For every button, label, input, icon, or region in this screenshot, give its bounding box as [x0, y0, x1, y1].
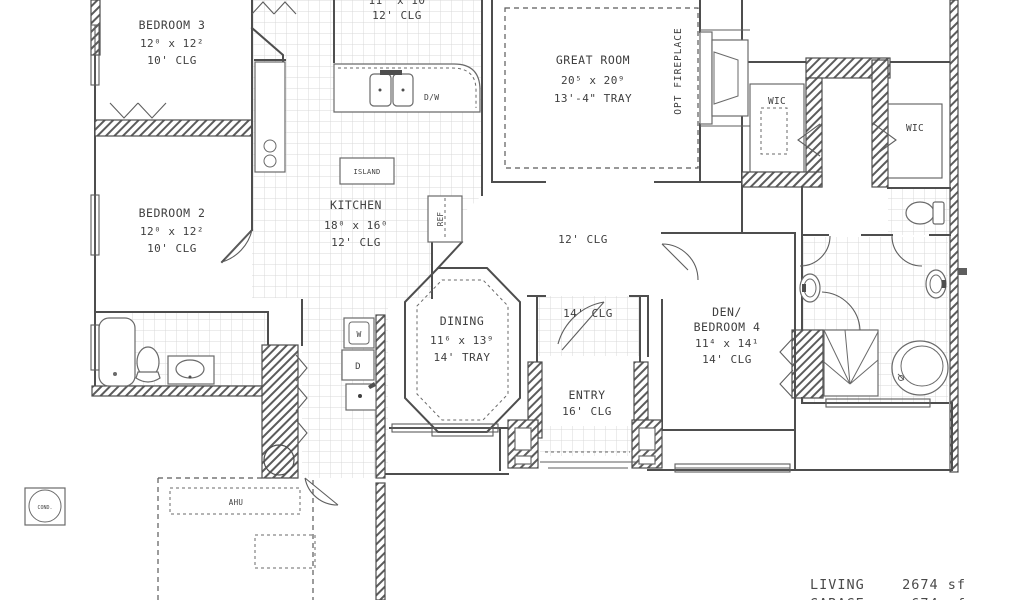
garage-value: 674 sf: [911, 596, 966, 600]
den-clg: 14' CLG: [702, 353, 752, 366]
opt-fireplace-label: OPT FIREPLACE: [673, 27, 684, 114]
window-under-dining: [392, 424, 498, 432]
condenser-label: COND.: [37, 505, 52, 511]
wall-wic-bottom: [742, 172, 822, 187]
fireplace-back: [700, 32, 712, 124]
kitchen-dims: 18⁰ x 16⁰: [324, 219, 388, 232]
great-room-name: GREAT ROOM: [556, 53, 630, 67]
den-name1: DEN/: [712, 305, 742, 319]
door-den-closet: [780, 338, 793, 398]
bedroom2-name: BEDROOM 2: [139, 206, 206, 220]
great-room-dims: 20⁵ x 20⁹: [561, 74, 625, 87]
living-label: LIVING: [810, 577, 865, 593]
wic-left-shelf: [761, 108, 787, 154]
wall-bath-chase: [792, 330, 823, 398]
den-dims: 11⁴ x 14¹: [695, 337, 759, 350]
dining-name: DINING: [440, 314, 485, 328]
window-bedroom2: [91, 195, 99, 255]
door-bed3-chevrons: [110, 103, 166, 118]
washer-label: W: [356, 330, 361, 339]
sink-left-bath: [176, 360, 204, 378]
hall-floor: [537, 296, 640, 356]
cafe-clg: 12' CLG: [372, 9, 422, 22]
shower: [824, 330, 878, 396]
window-bath-left: [91, 325, 99, 370]
dining-tray: [417, 280, 508, 420]
wall-left-bottom: [92, 386, 272, 396]
dining-dims: 11⁶ x 13⁹: [430, 334, 494, 347]
bedroom3-dims: 12⁰ x 12²: [140, 37, 204, 50]
ahu-label: AHU: [229, 498, 243, 507]
refrigerator-label: REF: [436, 212, 445, 227]
kitchen-clg: 12' CLG: [331, 236, 381, 249]
cafe-dims: 11' x 10: [369, 0, 426, 7]
water-heater: [264, 445, 294, 475]
dryer-label: D: [355, 362, 361, 372]
toilet-right: [906, 202, 934, 224]
entry-clg: 16' CLG: [562, 405, 612, 418]
floor-plan: BEDROOM 3 12⁰ x 12² 10' CLG 11' x 10 12'…: [0, 0, 1024, 600]
toilet-left-base: [136, 372, 160, 382]
garden-tub: [892, 341, 948, 395]
wall-bed3-bed2: [95, 120, 252, 136]
wall-garage-right: [376, 483, 385, 600]
bathtub-left: [99, 318, 135, 386]
dishwasher-label: D/W: [424, 93, 439, 102]
garage-outline: [158, 478, 313, 600]
bedroom3-name: BEDROOM 3: [139, 18, 206, 32]
wic-right-label: WIC: [906, 123, 924, 134]
wic-right-room: [888, 104, 942, 178]
floor-plan-drawing: BEDROOM 3 12⁰ x 12² 10' CLG 11' x 10 12'…: [0, 0, 1024, 600]
great-room-tray: [505, 8, 698, 168]
kitchen-name: KITCHEN: [330, 198, 382, 212]
den-name2: BEDROOM 4: [694, 320, 761, 334]
garage-inner-rect: [255, 535, 315, 568]
hose-bib: [958, 268, 967, 275]
bedroom2-dims: 12⁰ x 12²: [140, 225, 204, 238]
door-bed2: [222, 230, 252, 262]
island-label: ISLAND: [353, 168, 380, 176]
hall-clg: 14' CLG: [563, 307, 613, 320]
entry-name: ENTRY: [568, 388, 605, 402]
living-value: 2674 sf: [902, 577, 966, 593]
wic-left-label: WIC: [768, 96, 786, 107]
dining-clg: 14' TRAY: [434, 351, 491, 364]
wall-wic-center-right: [872, 60, 888, 187]
garage-label: GARAGE: [810, 596, 865, 600]
fireplace-box: [712, 40, 748, 116]
wall-right-exterior: [950, 0, 958, 472]
bedroom2-clg: 10' CLG: [147, 242, 197, 255]
door-den-entry: [662, 244, 698, 280]
door-garage: [305, 478, 338, 505]
kitchen-hall-clg: 12' CLG: [558, 233, 608, 246]
kitchen-faucet: [380, 70, 402, 75]
bedroom3-clg: 10' CLG: [147, 54, 197, 67]
toilet-right-tank: [933, 202, 944, 224]
great-room-clg: 13'-4" TRAY: [554, 92, 632, 105]
wall-laundry-right: [376, 315, 385, 478]
